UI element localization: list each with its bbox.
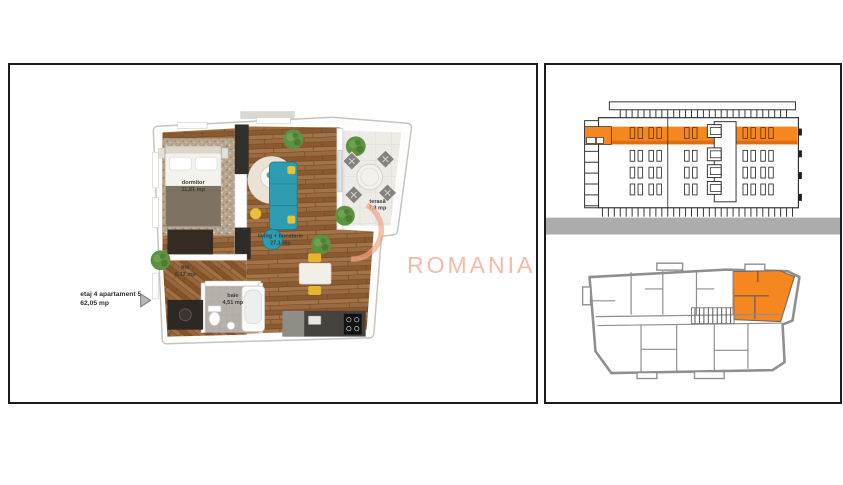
room-label-baie: baie [227,293,238,299]
base-fence [601,208,797,217]
room-label-dormitor: dormitor [182,180,206,186]
unit-label: etaj 4 apartament 5 62,05 mp [80,291,150,307]
room-area-baie: 4,51 mp [223,300,244,306]
highlighted-floor-shadow [599,140,797,144]
room-area-living: 27,1 mp [270,240,291,246]
roof-parapet [609,102,795,110]
unit-label-line2: 62,05 mp [80,300,109,307]
plant-living-dining [311,234,331,254]
building-elevation [585,102,802,217]
room-label-living: living + bucatarie [258,233,303,239]
washer-door [179,309,191,321]
highlighted-floor-band [599,127,797,141]
sink [227,322,235,330]
unit-label-line1: etaj 4 apartament 5 [80,291,141,298]
room-area-hol: 6,17 mp [175,272,196,278]
room-area-dormitor: 11,81 mp [181,187,205,193]
room-label-terasa: terasă [369,199,386,205]
room-label-hol: hol [181,265,190,271]
plant-terasa-bottom [335,206,355,226]
floor-key-plan [583,263,800,378]
plant-terasa-top [346,136,366,156]
nightstand-left [159,148,165,158]
floor-plan: dormitor 11,81 mp living + bucatarie 27,… [10,65,536,402]
ground-strip [546,218,840,235]
dresser [167,230,213,255]
site-panel [544,63,842,404]
kitchen-counter [282,311,365,337]
pouf [250,208,261,219]
sofa [270,162,298,229]
floor-plan-panel: dormitor 11,81 mp living + bucatarie 27,… [8,63,538,404]
stairwell [692,308,735,324]
building-views [546,65,840,402]
nightstand-right [222,148,228,158]
plant-living-top [283,129,303,149]
toilet [208,306,221,326]
bathtub [242,286,265,332]
unit-arrow-icon [141,294,151,307]
room-area-terasa: 7,3 mp [369,206,387,212]
plant-hol [151,250,171,270]
